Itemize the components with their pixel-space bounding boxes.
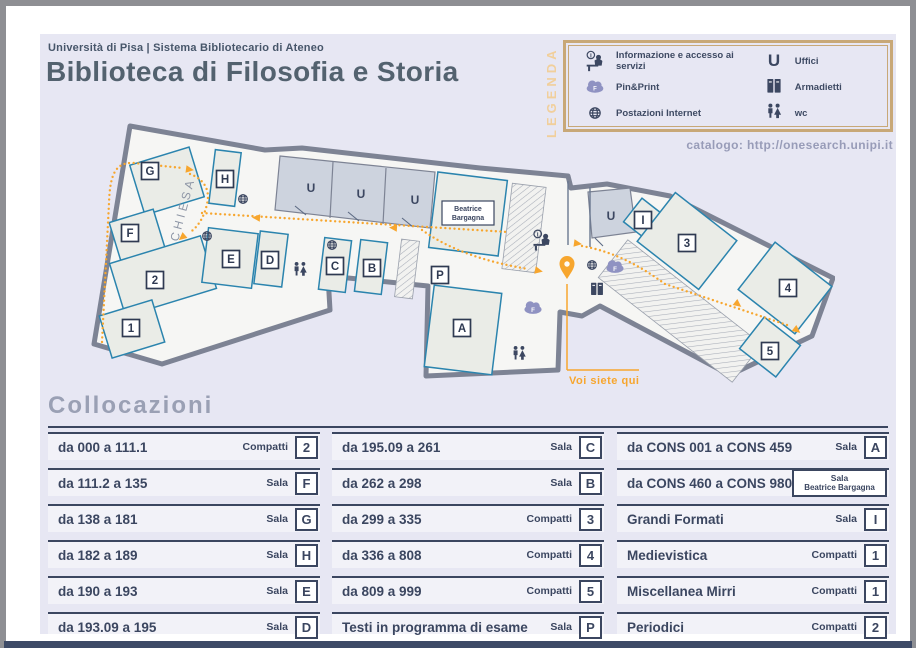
legend-label: Armadietti [795,82,842,93]
legend-item-offices: Uffici [762,48,881,74]
collocazioni-row: PeriodiciCompatti2 [617,612,889,640]
collocazioni-row: da 299 a 335Compatti3 [332,504,604,532]
room-badge: I [864,508,887,531]
collocazioni-heading: Collocazioni [48,392,213,420]
collocazioni-row: da CONS 001 a CONS 459SalaA [617,432,889,460]
collocazioni-row: Miscellanea MirriCompatti1 [617,576,889,604]
legend-item-info: Informazione e accesso ai servizi [583,48,762,74]
room-badge: B [579,472,602,495]
collocazioni-row: Testi in programma di esameSalaP [332,612,604,640]
floor-plan: CHIESA U U U U Beatrice Bargagna [90,118,835,388]
svg-text:G: G [146,166,155,178]
svg-text:D: D [266,255,274,267]
collocazioni-row: da CONS 460 a CONS 980SalaBeatrice Barga… [617,468,889,496]
svg-text:I: I [641,215,644,227]
svg-text:F: F [126,228,133,240]
poster-panel: Università di Pisa | Sistema Bibliotecar… [40,34,896,634]
letter-u-icon [762,48,786,74]
svg-text:B: B [368,263,376,275]
room-badge: P [579,616,602,639]
collocazioni-row: da 809 a 999Compatti5 [332,576,604,604]
svg-text:5: 5 [767,346,774,358]
heading-rule [48,426,888,428]
svg-text:C: C [331,261,339,273]
svg-text:U: U [357,187,366,201]
legend-label: Pin&Print [616,82,659,93]
svg-text:U: U [307,181,316,195]
room-badge: 1 [864,580,887,603]
room-badge: 3 [579,508,602,531]
room-badge: 2 [295,436,318,459]
room-badge: A [864,436,887,459]
info-desk-icon [583,48,607,74]
collocazioni-column-1: da 000 a 111.1Compatti2 da 111.2 a 135Sa… [48,432,320,648]
svg-text:3: 3 [684,238,690,250]
svg-text:U: U [411,193,420,207]
you-are-here-label: Voi siete qui [569,375,639,387]
room-badge: F [295,472,318,495]
collocazioni-column-2: da 195.09 a 261SalaC da 262 a 298SalaB d… [332,432,604,648]
legend-item-print: Pin&Print [583,74,762,100]
svg-text:Bargagna: Bargagna [452,215,484,222]
room-badge: 5 [579,580,602,603]
svg-text:2: 2 [152,275,158,287]
svg-text:A: A [458,323,466,335]
print-cloud-icon [583,74,607,100]
page-title: Biblioteca di Filosofia e Storia [46,56,459,88]
room-badge: 2 [864,616,887,639]
legend-label: Uffici [795,56,819,67]
legend-label: Postazioni Internet [616,108,701,119]
bottom-bar [4,641,912,648]
room-badge: E [295,580,318,603]
collocazioni-column-3: da CONS 001 a CONS 459SalaA da CONS 460 … [617,432,889,648]
bargagna-label: Beatrice Bargagna [442,201,494,225]
svg-text:P: P [436,270,444,282]
legend-label: Informazione e accesso ai servizi [616,50,762,72]
svg-text:Beatrice: Beatrice [454,206,482,213]
svg-text:H: H [221,174,229,186]
room-badge: D [295,616,318,639]
collocazioni-row: Grandi FormatiSalaI [617,504,889,532]
room-badge: 4 [579,544,602,567]
page-subtitle: Università di Pisa | Sistema Bibliotecar… [48,42,324,54]
legend-label: wc [795,108,808,119]
collocazioni-row: da 195.09 a 261SalaC [332,432,604,460]
room-badge: G [295,508,318,531]
svg-text:4: 4 [785,283,792,295]
room-badge-bargagna: SalaBeatrice Bargagna [792,469,887,497]
svg-text:U: U [607,209,616,223]
legend-items: Informazione e accesso ai servizi Pin&Pr… [568,45,888,127]
collocazioni-row: da 111.2 a 135SalaF [48,468,320,496]
legend-item-lockers: Armadietti [762,74,881,100]
collocazioni-row: da 193.09 a 195SalaD [48,612,320,640]
svg-text:1: 1 [128,323,135,335]
collocazioni-row: MedievisticaCompatti1 [617,540,889,568]
collocazioni-row: da 182 a 189SalaH [48,540,320,568]
room-badge: H [295,544,318,567]
svg-text:E: E [227,254,235,266]
collocazioni-row: da 000 a 111.1Compatti2 [48,432,320,460]
collocazioni-row: da 138 a 181SalaG [48,504,320,532]
room-badge: 1 [864,544,887,567]
collocazioni-row: da 262 a 298SalaB [332,468,604,496]
lockers-icon [762,74,786,100]
room-badge: C [579,436,602,459]
collocazioni-row: da 336 a 808Compatti4 [332,540,604,568]
collocazioni-row: da 190 a 193SalaE [48,576,320,604]
